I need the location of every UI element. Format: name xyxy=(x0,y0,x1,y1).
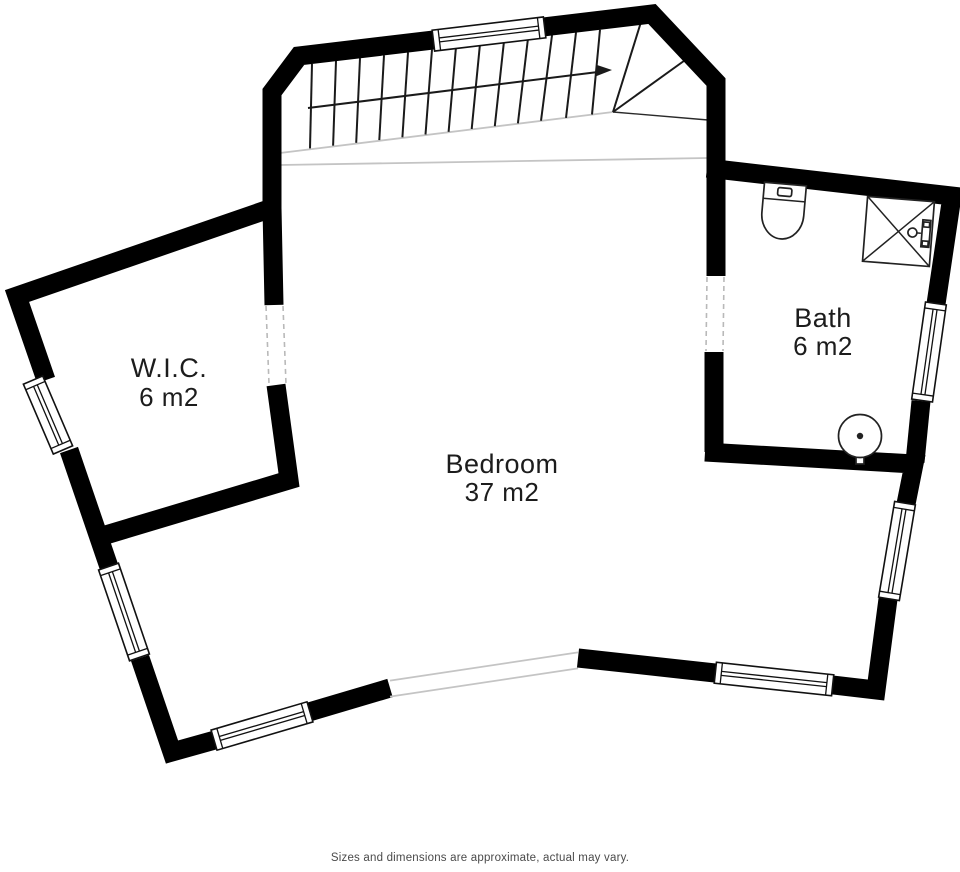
room-labels: W.I.C. 6 m2 Bedroom 37 m2 Bath 6 m2 xyxy=(131,303,853,507)
window-icon-bath-right xyxy=(912,302,947,402)
door-opening-wic xyxy=(266,306,286,384)
room-area-bedroom: 37 m2 xyxy=(465,477,540,507)
wall-opening-bottom xyxy=(390,652,578,696)
room-area-bath: 6 m2 xyxy=(793,331,853,361)
window-icon-left-upper xyxy=(23,376,72,454)
door-opening-bath xyxy=(706,277,724,351)
shower-icon xyxy=(863,196,935,266)
window-icon-top xyxy=(432,17,546,51)
window-icon-bottom-right xyxy=(714,662,834,695)
toilet-icon xyxy=(760,182,807,240)
room-label-bath: Bath xyxy=(794,303,852,333)
floor-plan-svg: W.I.C. 6 m2 Bedroom 37 m2 Bath 6 m2 Size… xyxy=(0,0,960,872)
room-label-wic: W.I.C. xyxy=(131,353,208,383)
window-icon-bedroom-right xyxy=(879,501,916,600)
stair-edge-lines xyxy=(280,112,708,165)
room-label-bedroom: Bedroom xyxy=(445,449,558,479)
window-icon-left-lower xyxy=(99,563,150,661)
disclaimer-text: Sizes and dimensions are approximate, ac… xyxy=(331,852,629,864)
room-area-wic: 6 m2 xyxy=(139,382,199,412)
floor-plan: W.I.C. 6 m2 Bedroom 37 m2 Bath 6 m2 Size… xyxy=(0,0,960,872)
stair-direction-arrow xyxy=(308,65,612,108)
window-icon-bottom-left xyxy=(211,702,313,750)
